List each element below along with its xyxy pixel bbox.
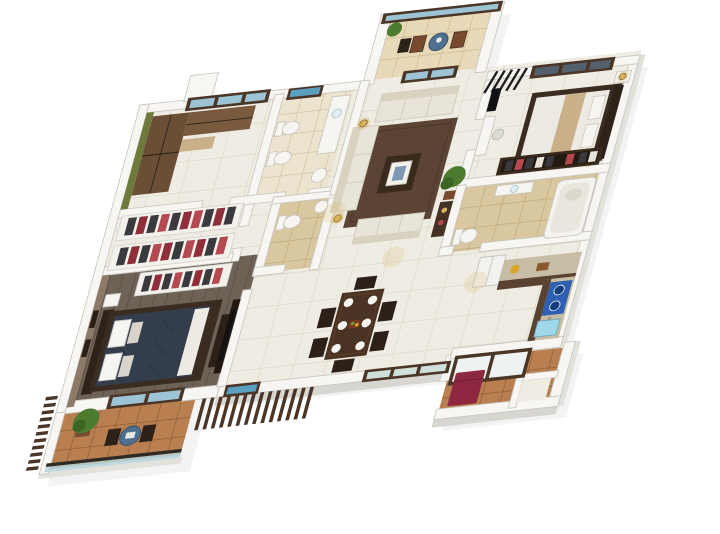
render-canvas [0, 0, 720, 534]
apartment [23, 0, 679, 481]
floor-plan-svg [0, 0, 720, 534]
bath3-south-wall-a [438, 246, 454, 256]
kitchen-sink [534, 319, 560, 337]
